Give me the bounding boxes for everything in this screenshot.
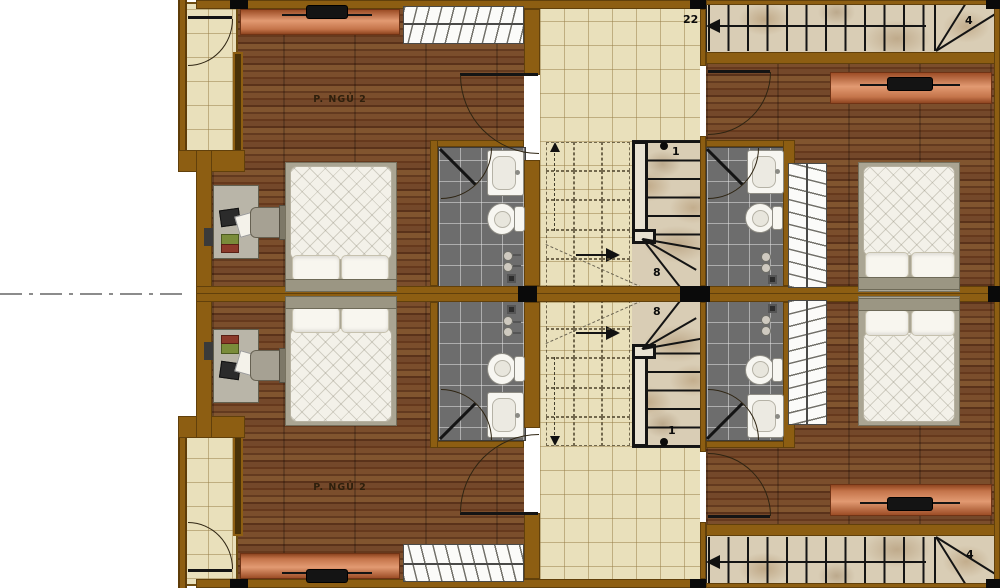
stair-right-winder-divider xyxy=(934,537,936,583)
book-red xyxy=(221,335,239,344)
shower-bar xyxy=(513,254,521,256)
wardrobe xyxy=(788,163,827,288)
toilet-bowl xyxy=(745,355,775,385)
balcony-door-frame xyxy=(233,52,243,152)
wardrobe-divider xyxy=(806,301,808,424)
stair-overhead-dashed-outline xyxy=(546,300,630,446)
toilet-seat xyxy=(752,361,769,378)
toilet-seat xyxy=(752,210,769,227)
column-block xyxy=(986,579,1000,588)
shower-knob-icon xyxy=(761,326,771,336)
book-green xyxy=(221,343,239,354)
toilet-bowl xyxy=(487,353,517,385)
stair-direction-line xyxy=(720,561,926,563)
shower-bar xyxy=(513,322,521,324)
wall-right-exterior xyxy=(994,293,1000,588)
wardrobe xyxy=(788,300,827,425)
wall-hall-left-upper xyxy=(524,513,540,579)
wall-balcony-outer xyxy=(178,418,187,588)
sink xyxy=(487,150,524,196)
shower-bar xyxy=(513,333,521,335)
floor-drain-icon xyxy=(768,275,777,284)
unit-bottom xyxy=(0,293,1000,588)
stair-start-dot xyxy=(660,142,668,150)
floor-drain-icon xyxy=(507,274,516,283)
tv xyxy=(307,570,347,582)
faucet-icon xyxy=(775,169,780,174)
stair-direction-arrow xyxy=(706,555,720,569)
sink-basin xyxy=(492,156,516,190)
tv xyxy=(888,498,932,510)
wall-left xyxy=(196,293,212,438)
wall-hall-right-lower xyxy=(700,302,706,452)
book-red xyxy=(221,244,239,253)
wall-hall-left-lower xyxy=(524,302,540,428)
floor-drain-icon xyxy=(768,304,777,313)
wall-bath-right-top xyxy=(706,140,790,147)
column-block xyxy=(690,579,706,588)
wall-hall-left-upper xyxy=(524,9,540,75)
column-block xyxy=(680,293,710,302)
toilet-seat xyxy=(494,360,511,377)
floor-drain-icon xyxy=(507,305,516,314)
stair-direction-line xyxy=(720,25,926,27)
wall-stair-bottom xyxy=(706,524,1000,536)
stair-overhead-dashed-outline xyxy=(546,142,630,288)
toilet-seat xyxy=(494,211,511,228)
bed-mattress xyxy=(290,166,392,260)
wardrobe-divider xyxy=(404,23,523,25)
bed-mattress xyxy=(863,332,955,422)
stair-direction-arrow xyxy=(706,19,720,33)
column-block xyxy=(518,293,537,302)
up-arrow-stem xyxy=(554,153,555,231)
wall-shelf xyxy=(204,342,213,360)
stair-number-4-bottom: 4 xyxy=(966,548,974,561)
tv xyxy=(307,6,347,18)
wardrobe xyxy=(403,544,524,582)
wall-bath-left-side xyxy=(430,302,438,448)
tv xyxy=(888,78,932,90)
shower-knob-icon xyxy=(761,263,771,273)
bed-mattress xyxy=(863,166,955,256)
wall-balcony-outer xyxy=(178,0,187,170)
stair-center-stringer xyxy=(632,345,648,447)
column-block xyxy=(230,579,248,588)
up-arrow-icon xyxy=(550,142,560,152)
stair-number-22: 22 xyxy=(683,13,698,26)
faucet-icon xyxy=(775,414,780,419)
toilet-bowl xyxy=(487,203,517,235)
toilet-tank xyxy=(772,206,783,230)
pillow xyxy=(292,255,340,281)
stair-right-treads xyxy=(708,5,936,51)
stair-start-dot xyxy=(660,438,668,446)
wardrobe-divider xyxy=(806,164,808,287)
wardrobe xyxy=(403,6,524,44)
column-block xyxy=(690,0,706,9)
pillow xyxy=(911,310,955,336)
wardrobe-divider xyxy=(404,564,523,566)
balcony-door-leaf xyxy=(188,570,232,573)
wall-top-right xyxy=(706,0,1000,5)
up-arrow-icon xyxy=(550,436,560,446)
wall-right-exterior xyxy=(994,0,1000,295)
wall-bath-left-side xyxy=(430,140,438,286)
shower-knob-icon xyxy=(503,262,513,272)
column-block xyxy=(986,0,1000,9)
bed-headboard xyxy=(285,296,397,309)
sink-basin xyxy=(492,398,516,432)
shower-knob-icon xyxy=(761,315,771,325)
room-label-bedroom-bottom: P. NGỦ 2 xyxy=(305,482,375,493)
shower-knob-icon xyxy=(503,251,513,261)
stair-number-8-top: 8 xyxy=(653,266,661,279)
wall-shelf xyxy=(204,228,213,246)
floor-plan: P. NGỦ 2 P. NGỦ 2 22 4 4 1 8 8 1 xyxy=(0,0,1000,588)
stair-number-1-top: 1 xyxy=(672,145,680,158)
faucet-icon xyxy=(515,170,520,175)
stair-center-treads xyxy=(642,141,700,241)
shower-bar xyxy=(513,265,521,267)
sink xyxy=(487,392,524,438)
stair-right-treads xyxy=(708,537,936,583)
column-block xyxy=(988,293,1000,302)
pillow xyxy=(341,255,389,281)
faucet-icon xyxy=(515,413,520,418)
pillow xyxy=(865,252,909,278)
wall-stair-bottom xyxy=(706,52,1000,64)
shower-knob-icon xyxy=(503,327,513,337)
stair-center-stringer xyxy=(632,141,648,243)
wall-hall-right-lower xyxy=(700,136,706,286)
toilet-tank xyxy=(514,356,525,382)
unit-top xyxy=(0,0,1000,295)
up-arrow-stem xyxy=(554,357,555,435)
shower-knob-icon xyxy=(503,316,513,326)
stair-number-8-bottom: 8 xyxy=(653,305,661,318)
toilet-tank xyxy=(772,358,783,382)
pillow xyxy=(865,310,909,336)
toilet-tank xyxy=(514,206,525,232)
stair-right-winder-divider xyxy=(934,5,936,51)
wall-left xyxy=(196,150,212,295)
bed-mattress xyxy=(290,328,392,422)
shower-knob-icon xyxy=(761,252,771,262)
pillow xyxy=(911,252,955,278)
stair-number-1-bottom: 1 xyxy=(668,424,676,437)
column-block xyxy=(230,0,248,9)
balcony-door-frame xyxy=(233,436,243,536)
toilet-bowl xyxy=(745,203,775,233)
pillow xyxy=(292,307,340,333)
room-label-bedroom-top: P. NGỦ 2 xyxy=(305,94,375,105)
bed-headboard xyxy=(858,298,960,311)
bed-headboard xyxy=(285,279,397,292)
wall-bath-right-top xyxy=(706,441,790,448)
stair-number-4-top: 4 xyxy=(965,14,973,27)
pillow xyxy=(341,307,389,333)
bed-headboard xyxy=(858,277,960,290)
wall-top-right xyxy=(706,583,1000,588)
wall-hall-left-lower xyxy=(524,160,540,286)
